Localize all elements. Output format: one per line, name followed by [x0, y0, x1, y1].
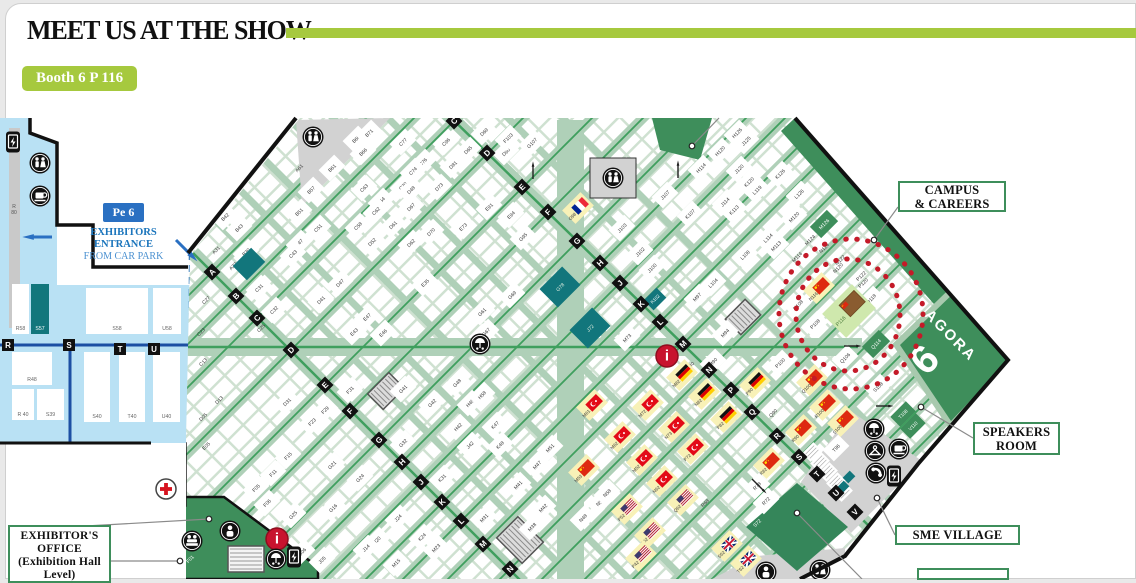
map-text: B	[427, 95, 438, 106]
booth-U40	[153, 352, 180, 422]
booth-label: D03	[165, 466, 174, 472]
meeting-icon	[266, 549, 287, 570]
meeting-icon	[470, 334, 491, 355]
annotation-dot	[689, 143, 695, 149]
map-text: 80	[11, 210, 17, 216]
stairs-icon	[228, 546, 264, 572]
map-text: R 40	[18, 412, 29, 418]
exhibition-hall: AGORA6A61B57B51B42B43B30A31A32B61B60B66B…	[95, 0, 1050, 579]
info-icon: i	[656, 345, 678, 367]
annotation-dot	[206, 516, 212, 522]
restroom-icon	[30, 153, 51, 174]
restroom-icon	[603, 168, 624, 189]
restroom-icon	[303, 127, 324, 148]
aisle-letter-R: R	[2, 339, 14, 351]
entrance-line2: ENTRANCE	[57, 239, 190, 251]
map-text: T	[118, 345, 123, 354]
info-icon: i	[266, 528, 288, 550]
booth-S40	[84, 352, 110, 422]
charging-icon	[6, 132, 20, 153]
stage: MEET US AT THE SHOW Booth 6 P 116 R80R58…	[0, 0, 1136, 579]
map-text: S	[66, 341, 72, 350]
annotation-dot	[177, 558, 183, 564]
person-icon	[220, 521, 241, 542]
map-text: i	[665, 348, 669, 365]
map-text: U	[151, 345, 157, 354]
map-text: R48	[27, 377, 37, 383]
booth-T40	[119, 352, 145, 422]
map-text: S40	[92, 414, 101, 420]
aisle-letter-T: T	[114, 343, 126, 355]
booth-label: D01	[164, 448, 173, 454]
sme-village-label: SME VILLAGE	[895, 525, 1020, 545]
entrance-line3: FROM CAR PARK	[57, 251, 190, 263]
floor-plan-map: R80R58S57S58U58R48R 40S39S40T40U40AGORA6…	[0, 0, 1136, 579]
map-text: S58	[112, 326, 121, 332]
map-text: S39	[46, 412, 55, 418]
aisle-letter-S: S	[63, 339, 75, 351]
map-text: R58	[16, 326, 26, 332]
aisle-letter-U: U	[148, 343, 160, 355]
annotation-dot	[871, 237, 877, 243]
map-text: U40	[162, 414, 172, 420]
meeting-icon	[864, 419, 885, 440]
campus-careers-label: CAMPUS & CAREERS	[898, 181, 1006, 212]
aisle-letter-B: B	[424, 92, 441, 109]
map-text: i	[275, 531, 279, 548]
firstaid-icon	[156, 479, 176, 499]
annotation-dot	[794, 510, 800, 516]
entrance-line1: EXHIBITORS	[57, 227, 190, 239]
charging-icon	[287, 547, 301, 568]
map-text: S57	[35, 326, 44, 332]
annotation-dot	[874, 495, 880, 501]
speakers-room-label: SPEAKERS ROOM	[973, 422, 1060, 455]
map-text: T40	[128, 414, 137, 420]
cutoff-label-box	[917, 568, 1009, 580]
pe6-gate-badge: Pe 6	[103, 203, 145, 222]
exhibitors-entrance-label: Pe 6 EXHIBITORS ENTRANCE FROM CAR PARK	[57, 203, 190, 263]
map-text: R	[5, 341, 11, 350]
annotation-dot	[918, 404, 924, 410]
cloakroom-icon	[865, 441, 886, 462]
infodesk-icon	[182, 531, 203, 552]
exhibitors-office-label: EXHIBITOR'S OFFICE (Exhibition Hall Leve…	[8, 525, 111, 583]
charging-icon	[887, 466, 901, 487]
coffee-icon	[889, 439, 910, 460]
coffee-icon	[30, 186, 51, 207]
phone-icon	[866, 463, 887, 484]
map-text: U58	[162, 326, 172, 332]
